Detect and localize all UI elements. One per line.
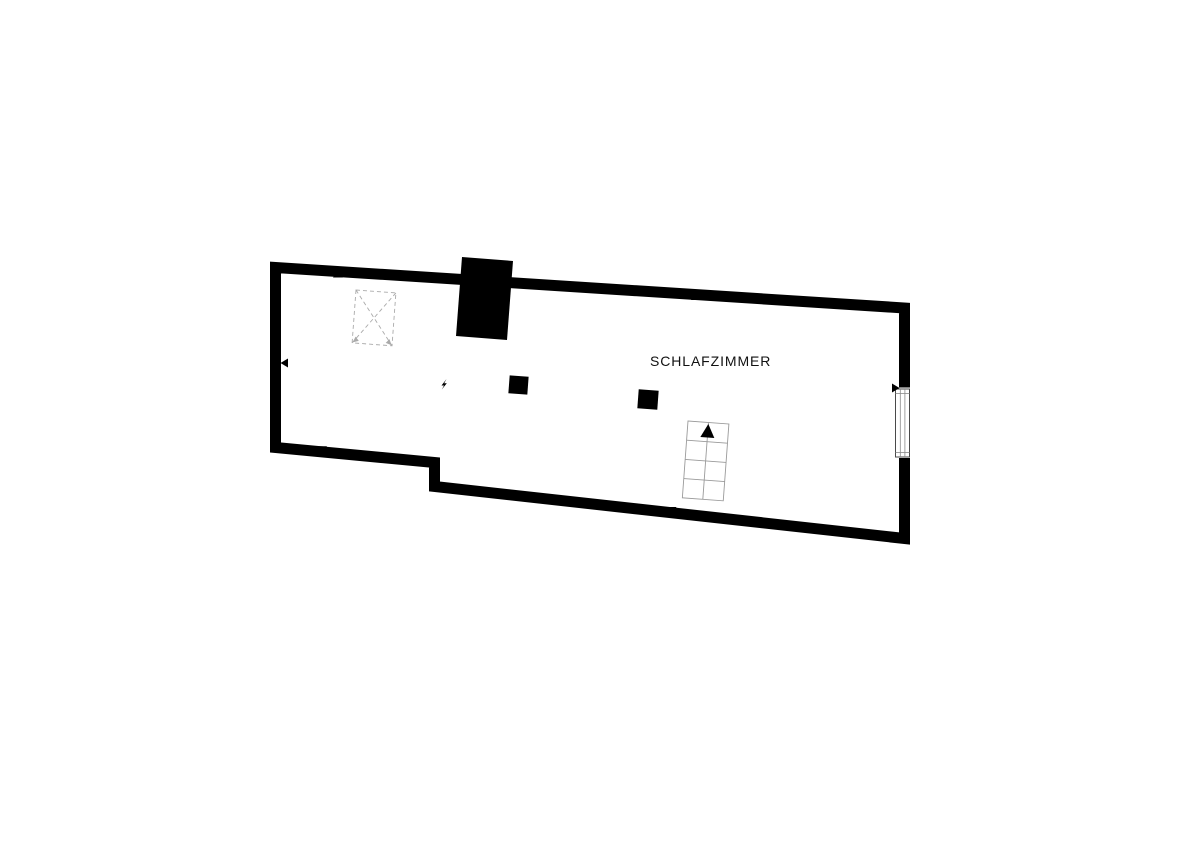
column-post xyxy=(508,375,528,394)
column-post xyxy=(637,389,658,409)
window-frame xyxy=(896,389,910,457)
chimney-block xyxy=(456,257,513,340)
room-outline-walls xyxy=(276,268,905,539)
floor-plan-canvas: SCHLAFZIMMER xyxy=(0,0,1200,848)
window-symbol xyxy=(896,388,914,459)
floor-plan-svg: SCHLAFZIMMER xyxy=(0,0,1200,848)
room-label: SCHLAFZIMMER xyxy=(650,353,771,369)
